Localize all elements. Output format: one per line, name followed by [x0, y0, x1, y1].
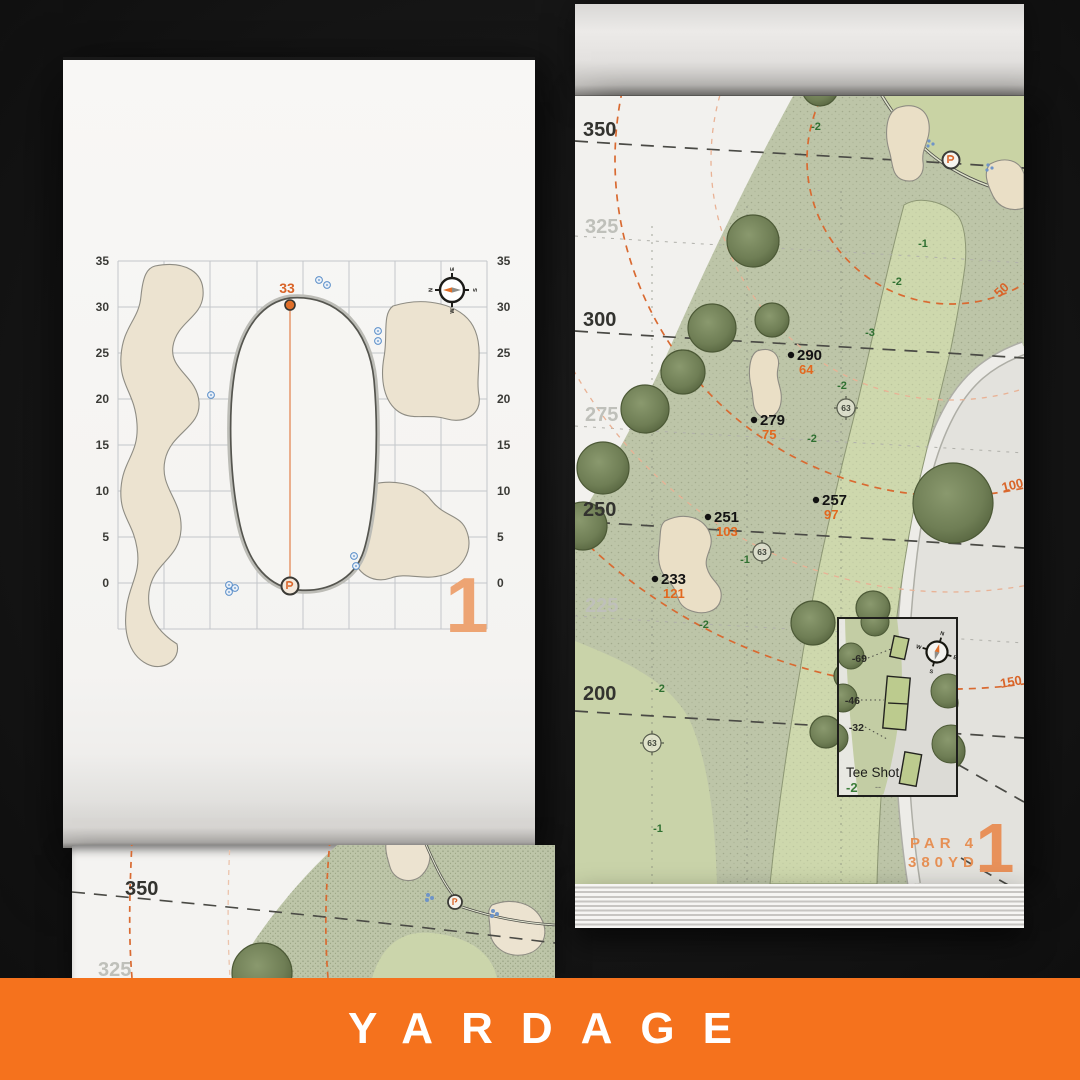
- distance-label: 325: [98, 959, 131, 978]
- tee-elevation: -2: [846, 780, 858, 795]
- next-page-map: 350 325: [72, 845, 555, 978]
- svg-text:-32: -32: [849, 722, 864, 734]
- svg-text:-1: -1: [740, 554, 750, 566]
- svg-text:20: 20: [497, 392, 511, 406]
- svg-text:63: 63: [647, 738, 657, 748]
- svg-text:5: 5: [102, 530, 109, 544]
- green-front-yardage: 33: [279, 280, 295, 296]
- svg-text:15: 15: [497, 438, 511, 452]
- bunker-right-top: [383, 302, 480, 421]
- svg-text:250: 250: [583, 499, 616, 521]
- svg-text:350: 350: [583, 119, 616, 141]
- pin-marker: [282, 578, 299, 595]
- svg-text:-1: -1: [918, 238, 928, 250]
- hole-number: 1: [445, 561, 488, 649]
- svg-text:-2: -2: [655, 683, 665, 695]
- svg-text:0: 0: [102, 576, 109, 590]
- svg-text:W: W: [450, 308, 456, 314]
- axis-ticks-right: 35 30 25 20 15 10 5 0: [497, 254, 511, 590]
- svg-text:63: 63: [757, 547, 767, 557]
- svg-text:225: 225: [585, 595, 618, 617]
- tee-shot-inset: -69 -46 -32 Tee Shot -2 -- N E S: [818, 608, 970, 796]
- svg-text:-2: -2: [807, 433, 817, 445]
- svg-text:380YD: 380YD: [908, 854, 979, 871]
- svg-text:-2: -2: [699, 619, 709, 631]
- svg-text:30: 30: [497, 300, 511, 314]
- svg-text:121: 121: [663, 586, 685, 601]
- svg-text:275: 275: [585, 404, 618, 426]
- svg-text:25: 25: [96, 346, 110, 360]
- svg-text:35: 35: [96, 254, 110, 268]
- svg-text:-46: -46: [845, 695, 860, 707]
- green-detail-map: 33 35 30: [63, 60, 535, 848]
- axis-ticks-left: 35 30 25 20 15 10 5 0: [96, 254, 110, 590]
- svg-text:325: 325: [585, 216, 618, 238]
- yardage-book-mockup: 33 35 30: [0, 0, 1080, 1080]
- svg-text:64: 64: [799, 362, 814, 377]
- svg-text:-2: -2: [837, 380, 847, 392]
- page-curl: [63, 802, 535, 848]
- svg-text:30: 30: [96, 300, 110, 314]
- tee-shot-label: Tee Shot: [846, 765, 900, 780]
- svg-text:97: 97: [824, 507, 838, 522]
- yardage-banner: YARDAGE: [0, 978, 1080, 1080]
- svg-text:200: 200: [583, 683, 616, 705]
- bunker-left: [121, 264, 203, 666]
- putting-green-outline: [231, 298, 377, 591]
- svg-text:-2: -2: [811, 121, 821, 133]
- flipped-page-curl: [575, 4, 1024, 96]
- svg-text:PAR 4: PAR 4: [910, 835, 978, 852]
- svg-text:35: 35: [497, 254, 511, 268]
- banner-title: YARDAGE: [320, 1004, 760, 1054]
- svg-text:-3: -3: [865, 327, 875, 339]
- pin-marker: [943, 152, 960, 169]
- hole-number: 1: [976, 809, 1015, 884]
- svg-text:-1: -1: [653, 823, 663, 835]
- svg-text:S: S: [473, 288, 479, 292]
- svg-text:10: 10: [96, 484, 110, 498]
- next-page-peek: 350 325: [72, 845, 555, 978]
- svg-text:25: 25: [497, 346, 511, 360]
- distance-label: 350: [125, 878, 158, 900]
- hole-map: 63 63 63: [575, 96, 1024, 884]
- hole-map-page: 63 63 63: [575, 96, 1024, 884]
- page-edge-stack: [575, 884, 1024, 928]
- svg-text:-2: -2: [892, 276, 902, 288]
- svg-text:20: 20: [96, 392, 110, 406]
- svg-text:N: N: [429, 288, 435, 292]
- svg-text:E: E: [450, 267, 456, 271]
- svg-text:75: 75: [762, 427, 776, 442]
- svg-text:15: 15: [96, 438, 110, 452]
- tee-ellipsis: --: [875, 782, 881, 792]
- svg-text:10: 10: [497, 484, 511, 498]
- svg-text:63: 63: [841, 403, 851, 413]
- svg-text:5: 5: [497, 530, 504, 544]
- svg-text:300: 300: [583, 309, 616, 331]
- svg-text:103: 103: [716, 524, 738, 539]
- svg-text:0: 0: [497, 576, 504, 590]
- svg-text:-69: -69: [852, 653, 867, 665]
- green-detail-page: 33 35 30: [63, 57, 535, 848]
